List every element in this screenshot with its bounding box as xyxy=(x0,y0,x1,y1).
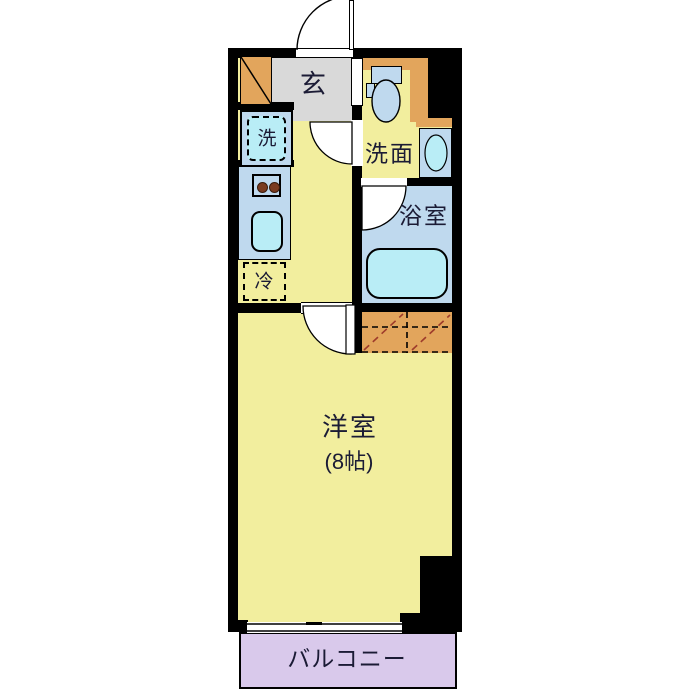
main-room-doorway xyxy=(301,302,352,314)
main-room-label: 洋室 xyxy=(322,414,378,440)
wall-bottom-left xyxy=(228,620,248,632)
wall-washroom-bathroom xyxy=(405,178,452,186)
toilet-flush-box xyxy=(366,83,375,98)
wall-bottom-right xyxy=(400,613,462,632)
entrance-label: 玄 xyxy=(300,71,328,97)
wall-main-room-top xyxy=(238,303,302,313)
washroom-doorway xyxy=(351,120,363,166)
balcony-label: バルコニー xyxy=(287,648,407,671)
stove-burner-left xyxy=(257,182,268,193)
refrigerator-label: 冷 xyxy=(254,273,273,292)
bathtub xyxy=(366,248,448,299)
closet-area xyxy=(362,312,452,353)
shoe-cabinet xyxy=(240,56,272,105)
main-room-size-label: (8帖) xyxy=(325,451,374,473)
floor-plan: 玄 洗 冷 洗面 浴室 洋室 (8帖) バルコニー xyxy=(0,0,700,700)
toilet-wall-right xyxy=(410,58,428,122)
kitchen-sink xyxy=(251,211,283,252)
entrance-door-arc xyxy=(297,0,351,50)
wall-left xyxy=(228,48,238,632)
toilet-tank xyxy=(371,66,402,84)
entrance-door-leaf xyxy=(349,0,354,50)
wash-stand xyxy=(419,128,452,178)
washing-machine-label: 洗 xyxy=(257,130,276,149)
pillar-top-right xyxy=(428,48,462,118)
balcony-window xyxy=(247,622,402,633)
entrance-doorway xyxy=(296,48,353,58)
bathroom-label: 浴室 xyxy=(399,205,449,228)
stove xyxy=(252,174,281,197)
bathroom-doorway xyxy=(361,178,407,187)
stove-burner-right xyxy=(269,182,280,193)
wall-bathroom-bottom xyxy=(352,303,462,312)
kitchen-counter xyxy=(238,166,291,260)
wall-right xyxy=(452,48,462,632)
toilet-door xyxy=(351,58,363,106)
washroom-label: 洗面 xyxy=(365,143,415,166)
